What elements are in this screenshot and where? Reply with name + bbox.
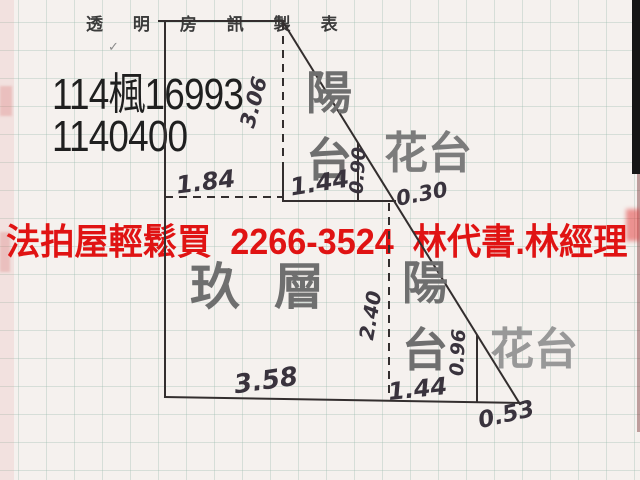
wall-flower-edge [476,335,478,402]
room-label-floor: 玖層 [190,262,358,312]
wall-top [158,20,285,22]
room-label-flower-top: 花台 [384,132,472,176]
wall-dashed-divider [388,203,390,399]
wall-left [164,21,166,398]
dim-bottom-left-width: 3.58 [232,362,300,401]
dim-flower-height: 0.96 [446,331,470,376]
scan-pink-smudge [0,86,12,116]
wall-dashed-upper-right [282,22,284,168]
room-label-flower-bottom: 花台 [490,328,578,372]
pen-speck: ✓ [108,40,119,55]
scan-red-smudge [626,209,640,241]
page-title: 透 明 房 訊 製 表 [86,10,350,35]
dim-inner-height: 2.40 [354,292,386,341]
wall-step [283,200,396,202]
case-code: 1140400 [52,116,243,158]
dim-notch-height: 0.90 [345,149,370,194]
scanner-edge-strip [632,0,640,174]
wall-bottom [164,396,524,404]
case-number: 114楓16993 [52,74,243,116]
room-label-balcony-right: 陽台 [402,250,452,383]
dim-top-left-width: 1.84 [175,164,237,199]
scanned-floorplan-page: ✓ 透 明 房 訊 製 表 114楓16993 1140400 法拍屋輕鬆買 2… [0,0,640,480]
dim-notch-width: 1.44 [288,165,351,202]
case-number-block: 114楓16993 1140400 [52,74,243,158]
dim-edge-offset: 0.30 [394,177,449,210]
